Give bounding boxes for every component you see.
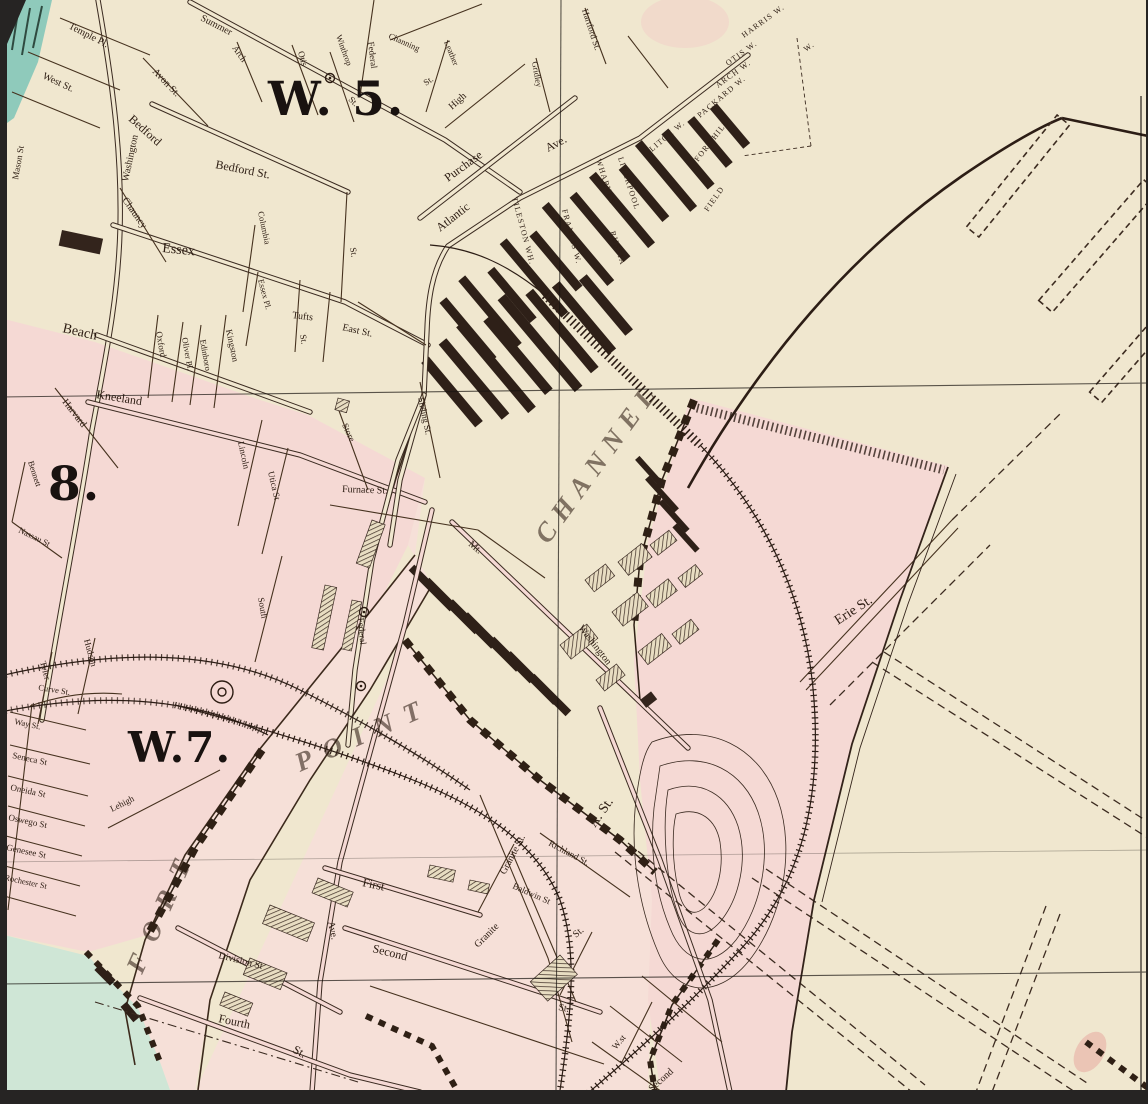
- map-viewport[interactable]: W. 5. 8. W.7. FORT POINT CHANNEL Mason S…: [0, 0, 1148, 1104]
- label-furnace-st: Furnace St.: [342, 484, 388, 497]
- label-ward8: 8.: [48, 457, 101, 512]
- label-ward7: W.7.: [127, 723, 231, 772]
- label-st: St.: [348, 247, 360, 258]
- atlas-map: W. 5. 8. W.7. FORT POINT CHANNEL Mason S…: [0, 0, 1148, 1104]
- label-st: St.: [557, 1002, 570, 1015]
- label-st: St.: [298, 334, 310, 345]
- label-ward5: W. 5.: [267, 72, 405, 127]
